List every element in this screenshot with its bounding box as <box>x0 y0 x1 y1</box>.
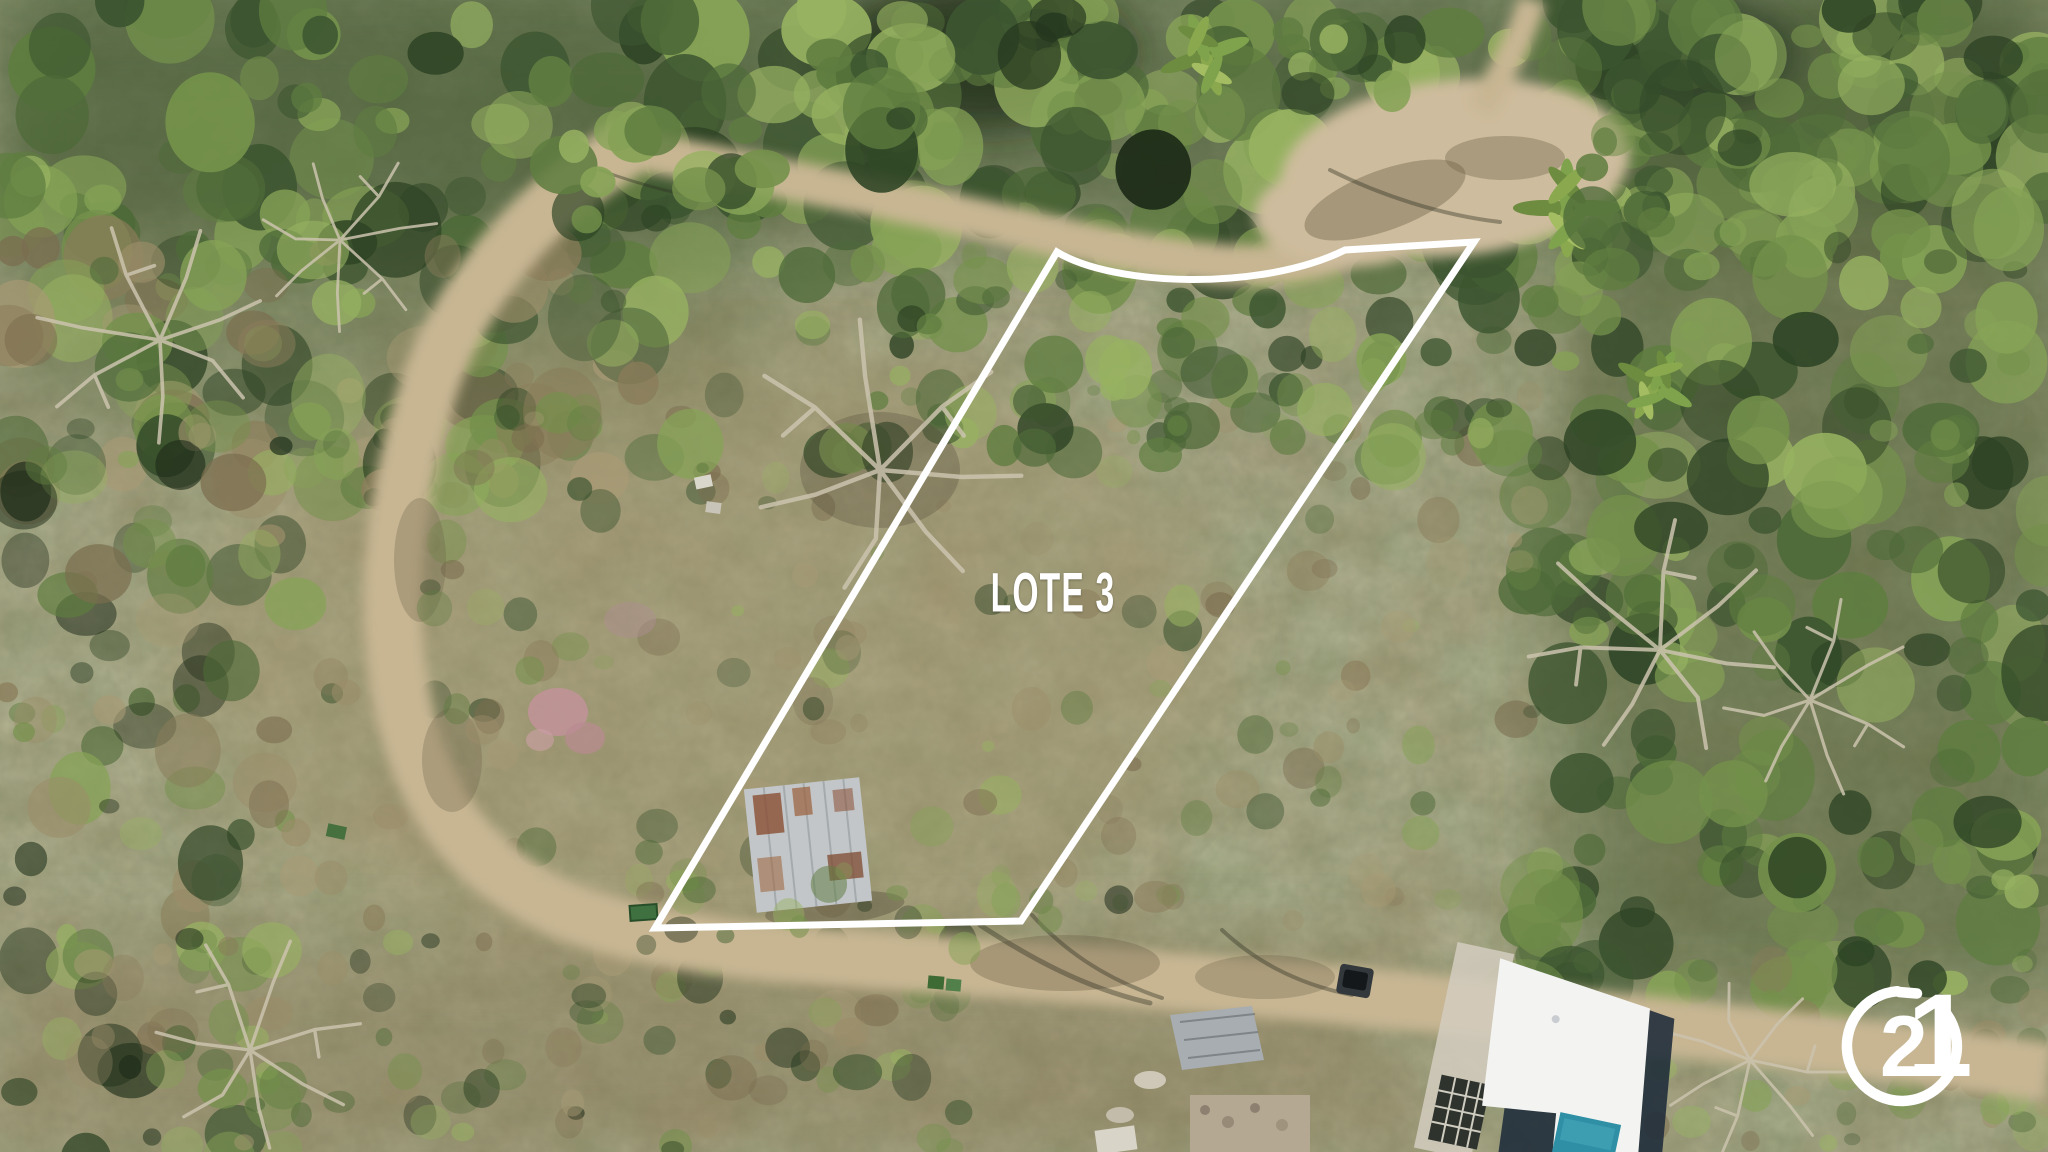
bush <box>1181 346 1248 398</box>
bush <box>1768 837 1826 898</box>
bush <box>1402 816 1440 850</box>
bush <box>1791 25 1823 48</box>
bush <box>1309 307 1356 362</box>
bush <box>1620 896 1655 927</box>
bush <box>354 106 398 158</box>
bush <box>65 1036 113 1089</box>
bush <box>886 107 915 129</box>
bush <box>270 437 293 456</box>
bush <box>843 67 920 149</box>
bush <box>635 840 663 865</box>
bush <box>1384 15 1426 63</box>
bush <box>1688 959 1718 981</box>
bush <box>1167 415 1187 436</box>
bush <box>1639 60 1726 156</box>
bush <box>1749 507 1782 534</box>
bush <box>963 789 997 816</box>
bush <box>120 817 162 850</box>
bush <box>1552 351 1580 371</box>
bush <box>1871 209 1930 258</box>
bush <box>376 1028 393 1046</box>
bush <box>563 965 580 980</box>
bush <box>886 885 908 901</box>
bush <box>1819 1135 1837 1152</box>
bush <box>657 409 723 479</box>
bush <box>165 72 254 172</box>
bush <box>706 1055 757 1100</box>
bush <box>720 1010 736 1025</box>
bush <box>701 63 756 120</box>
bush <box>1752 642 1791 681</box>
bush <box>1024 336 1083 393</box>
bush <box>1954 796 2022 849</box>
bush <box>260 1062 308 1110</box>
bush <box>487 740 518 770</box>
bush <box>1741 1131 1759 1151</box>
bush <box>463 1069 499 1108</box>
bush <box>198 1069 248 1109</box>
bush <box>998 21 1061 90</box>
bush <box>1101 817 1136 855</box>
bush <box>1069 291 1112 333</box>
bush <box>1563 186 1621 250</box>
bush <box>643 1026 675 1055</box>
bush <box>1972 436 2029 490</box>
bush <box>1417 497 1459 543</box>
bush <box>1638 207 1676 237</box>
bush <box>451 1123 474 1141</box>
bush <box>1950 349 1987 383</box>
bush <box>1349 854 1384 891</box>
bush <box>1096 455 1132 488</box>
bush <box>1550 753 1614 813</box>
bush <box>280 855 319 896</box>
bush <box>363 905 385 932</box>
bush <box>1824 232 1851 264</box>
bush <box>1839 256 1889 311</box>
bush <box>948 610 960 624</box>
bush <box>1115 129 1191 209</box>
green-bin <box>927 975 944 989</box>
bush <box>1415 7 1484 57</box>
bush <box>315 860 348 895</box>
bush <box>561 1090 584 1117</box>
bush <box>1684 252 1720 280</box>
bush <box>572 205 603 233</box>
bush <box>274 634 297 651</box>
bush <box>545 1027 582 1067</box>
bush <box>567 405 603 441</box>
bush <box>580 166 615 197</box>
bush <box>99 799 119 814</box>
bush <box>1900 287 1941 329</box>
bush <box>1924 249 1957 274</box>
bush <box>850 714 867 733</box>
bush <box>15 842 47 876</box>
bush <box>146 1050 185 1089</box>
bush <box>465 715 499 745</box>
bush <box>572 983 607 1008</box>
bush <box>1305 505 1334 534</box>
bush <box>705 373 744 418</box>
bush <box>1907 334 1934 354</box>
bush <box>1964 36 2023 80</box>
bush <box>1328 680 1356 701</box>
bush <box>165 287 223 352</box>
bush <box>118 451 139 468</box>
lot-label: LOTE 3 <box>991 560 1116 625</box>
bush <box>1573 607 1600 634</box>
bush <box>1593 127 1617 156</box>
bush <box>467 589 504 626</box>
bush <box>618 362 659 405</box>
bush <box>945 1100 972 1125</box>
bush <box>774 647 801 670</box>
bush <box>1468 418 1494 449</box>
bush <box>1838 55 1905 115</box>
bush <box>1762 990 1780 1006</box>
bush <box>1773 312 1839 367</box>
bush <box>1161 327 1195 359</box>
bush <box>892 1054 931 1101</box>
bush <box>982 286 1010 308</box>
bush <box>570 52 645 107</box>
bush <box>1012 687 1051 731</box>
bush <box>1948 637 1989 675</box>
bush <box>808 998 842 1028</box>
bush <box>504 597 538 631</box>
bush <box>917 314 944 340</box>
bush <box>697 1117 718 1138</box>
bush <box>1521 285 1558 318</box>
bush <box>175 928 203 950</box>
bush <box>1938 539 2005 604</box>
bush <box>896 27 956 82</box>
bush <box>1889 526 1943 573</box>
bush <box>155 440 205 490</box>
bush <box>1282 72 1335 115</box>
bush <box>1857 837 1894 877</box>
bush <box>524 412 544 427</box>
bush <box>67 418 95 439</box>
bush <box>1937 675 1972 712</box>
bush <box>1838 936 1875 966</box>
bush <box>1626 760 1713 844</box>
bush <box>3 887 26 906</box>
bush <box>1634 166 1673 196</box>
bush <box>1421 338 1452 366</box>
bush <box>559 130 589 163</box>
bush <box>476 933 493 952</box>
bush <box>1139 437 1182 472</box>
bush <box>317 951 348 986</box>
bush <box>917 1124 952 1152</box>
bush <box>373 804 409 830</box>
bush <box>991 883 1020 917</box>
bush <box>1268 336 1306 372</box>
bush <box>1727 396 1789 465</box>
bush <box>1276 660 1291 675</box>
bush <box>166 545 206 587</box>
bush <box>1564 409 1637 475</box>
bush <box>1980 1092 2009 1125</box>
bush <box>153 943 172 965</box>
bush <box>201 454 267 512</box>
bush <box>1313 731 1344 763</box>
bush <box>408 32 464 75</box>
bush <box>1930 749 1975 787</box>
bush <box>245 1097 265 1112</box>
bush <box>1507 532 1522 547</box>
bush <box>143 1128 161 1145</box>
bush <box>1672 1106 1711 1138</box>
bush <box>350 949 371 974</box>
century21-logo: 2 1 <box>1840 980 1970 1110</box>
bush <box>1347 718 1360 733</box>
bush <box>84 185 122 215</box>
bush <box>948 932 980 965</box>
bush <box>443 693 470 724</box>
bush <box>1164 584 1199 626</box>
bush <box>323 430 350 458</box>
bush <box>1486 398 1512 417</box>
bush <box>762 462 789 494</box>
c21-logo-svg: 2 1 <box>1840 980 1970 1110</box>
bush <box>1517 382 1543 411</box>
bush <box>1134 881 1177 913</box>
bush <box>851 245 886 282</box>
bush <box>1829 790 1872 835</box>
bush <box>1904 633 1950 666</box>
bush <box>281 819 310 847</box>
bush <box>1374 70 1411 112</box>
bush <box>795 311 830 340</box>
bush <box>729 117 763 144</box>
bush <box>1523 705 1541 718</box>
bush <box>240 56 279 100</box>
bush <box>1955 80 2009 144</box>
bush <box>982 741 995 752</box>
bush <box>800 1040 828 1072</box>
bush <box>810 719 846 744</box>
bush <box>512 424 545 453</box>
bush <box>1279 722 1298 737</box>
bush <box>803 697 824 721</box>
bush <box>136 593 200 647</box>
bush <box>1 1078 37 1106</box>
bush <box>1249 289 1286 329</box>
bush <box>1319 24 1348 53</box>
bush <box>29 13 91 79</box>
bush <box>65 544 132 604</box>
bush <box>1574 834 1606 866</box>
bush <box>1237 715 1273 754</box>
parked-vehicle <box>1336 963 1375 998</box>
bush <box>1715 20 1787 92</box>
bush <box>833 1054 882 1090</box>
bush <box>234 1134 254 1150</box>
bush <box>27 777 90 838</box>
bush <box>417 590 453 626</box>
bush <box>482 1039 504 1064</box>
bush <box>388 1053 422 1090</box>
bush <box>1038 905 1063 933</box>
bush <box>1402 726 1435 765</box>
bush <box>1631 709 1676 759</box>
bush <box>1021 522 1054 556</box>
bush <box>696 463 708 473</box>
bush <box>116 368 144 391</box>
bush <box>238 320 296 368</box>
bush <box>16 75 89 154</box>
bush <box>779 247 836 303</box>
bush <box>636 882 664 906</box>
bush <box>1410 791 1435 815</box>
bush <box>1283 910 1304 931</box>
bush <box>1648 448 1688 482</box>
bush <box>445 177 486 216</box>
bush <box>302 16 338 55</box>
bush <box>1381 610 1415 643</box>
bush <box>1801 457 1883 531</box>
bush <box>1061 691 1093 725</box>
bush <box>624 106 681 156</box>
bush <box>593 655 614 670</box>
bush <box>835 862 852 879</box>
bush <box>1506 550 1541 591</box>
bush <box>188 423 216 448</box>
bush <box>1870 420 1898 442</box>
bush <box>1040 107 1111 185</box>
bush <box>25 446 67 485</box>
bush <box>792 563 818 587</box>
bush <box>471 104 529 145</box>
bush <box>636 935 656 955</box>
bush <box>1122 595 1157 628</box>
bush <box>1181 800 1213 836</box>
bush <box>1287 551 1331 591</box>
green-box <box>630 904 658 921</box>
bush <box>1246 793 1284 829</box>
bush <box>1931 420 1960 451</box>
bush <box>1944 482 1969 507</box>
bush <box>1960 600 1998 644</box>
bush <box>1991 869 2015 890</box>
bush <box>93 695 126 724</box>
bush <box>515 656 544 684</box>
bush <box>1310 789 1330 807</box>
bush <box>1112 894 1128 911</box>
bush <box>147 1008 198 1053</box>
bush <box>2 533 50 588</box>
bush <box>90 257 119 285</box>
bush <box>1720 218 1747 246</box>
bush <box>717 658 751 687</box>
bush <box>291 83 322 113</box>
bush <box>421 933 440 948</box>
bush <box>1350 477 1370 500</box>
bush <box>363 983 395 1012</box>
bush <box>686 701 713 725</box>
bush <box>242 922 302 978</box>
bush <box>1434 889 1461 910</box>
bush <box>735 150 790 189</box>
bush <box>349 55 409 103</box>
bush <box>2012 956 2033 973</box>
bush <box>209 1000 249 1045</box>
bush <box>806 39 852 73</box>
bush <box>265 577 327 630</box>
bush <box>1878 116 1950 201</box>
bush <box>580 489 620 533</box>
bush <box>1844 1133 1860 1145</box>
bush <box>178 947 211 984</box>
bush <box>70 662 93 683</box>
bush <box>672 167 725 210</box>
bush <box>529 56 574 107</box>
bush <box>1900 11 1943 45</box>
bush <box>835 635 860 661</box>
bush <box>1075 880 1097 901</box>
bush <box>1441 431 1465 456</box>
bush <box>1458 264 1520 334</box>
bush <box>1576 154 1608 182</box>
bush <box>1751 947 1793 994</box>
bush <box>203 640 260 701</box>
bush <box>1127 430 1140 444</box>
bush <box>238 530 280 580</box>
bush <box>102 955 144 1002</box>
bush <box>218 937 238 956</box>
bush <box>682 877 715 904</box>
bush <box>1426 536 1470 588</box>
bush <box>731 605 744 616</box>
bush <box>332 679 361 705</box>
bush <box>249 780 289 828</box>
bush <box>1514 329 1556 366</box>
bush <box>1297 383 1352 436</box>
bush <box>256 716 292 743</box>
bush <box>13 722 35 742</box>
bush <box>910 806 954 846</box>
bush <box>191 854 241 906</box>
bush <box>1013 428 1056 466</box>
bush <box>1583 248 1640 291</box>
bush <box>1974 187 2045 271</box>
aerial-photo: LOTE 3 2 1 <box>0 0 2048 1152</box>
bush <box>383 930 413 955</box>
bush <box>284 448 326 489</box>
bush <box>1511 486 1548 525</box>
bush <box>1087 385 1100 396</box>
bush <box>291 354 366 441</box>
bush <box>244 268 288 303</box>
bush <box>1361 423 1426 490</box>
bush <box>454 450 495 486</box>
bush <box>641 205 671 232</box>
green-bin <box>946 978 962 991</box>
bush <box>1273 17 1304 46</box>
bush <box>411 1105 451 1140</box>
bush <box>1230 392 1280 433</box>
bush <box>1099 339 1152 399</box>
bush <box>1508 869 1583 957</box>
bush <box>1837 647 1915 722</box>
bush <box>834 1017 869 1046</box>
bush <box>636 809 678 843</box>
bush <box>1183 159 1242 224</box>
bush <box>548 274 621 361</box>
